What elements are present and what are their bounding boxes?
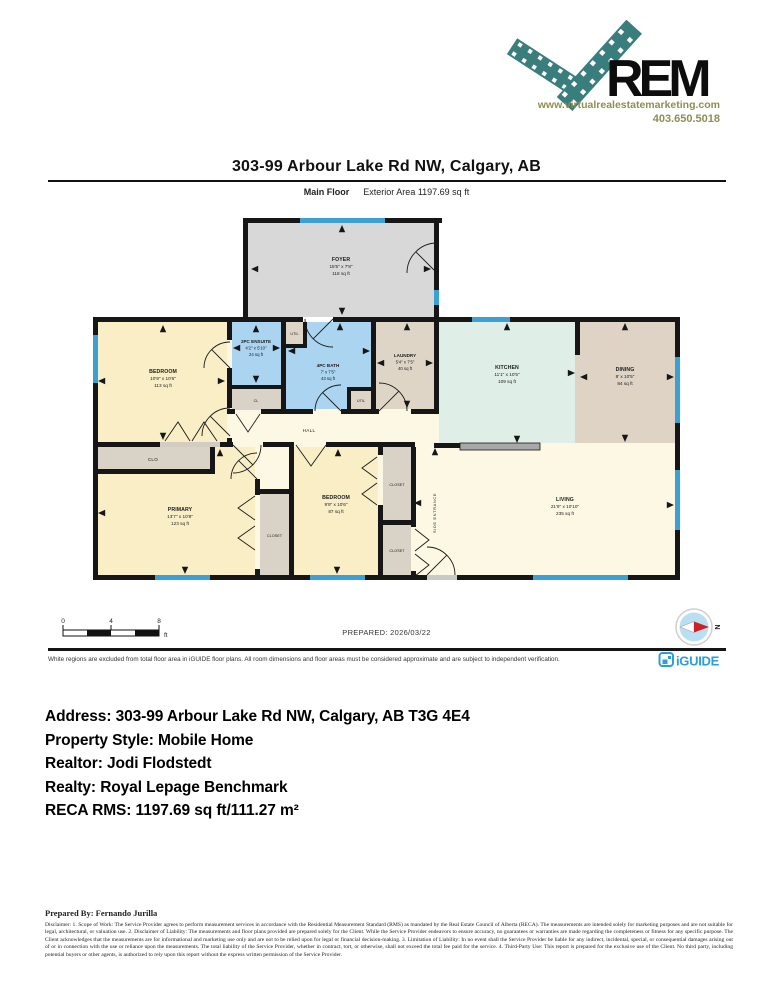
svg-text:21'9" x 10'10": 21'9" x 10'10" (551, 504, 580, 509)
util-label-2: UTIL (357, 399, 365, 403)
iguide-logo: iGUIDE (658, 650, 730, 675)
info-address: Address: 303-99 Arbour Lake Rd NW, Calga… (45, 705, 470, 729)
svg-text:10'9" x 10'6": 10'9" x 10'6" (150, 376, 176, 381)
svg-text:DINING: DINING (616, 367, 635, 373)
svg-text:11'1" x 10'5": 11'1" x 10'5" (494, 372, 520, 377)
floor-label: Main Floor (304, 187, 350, 197)
room-label-foyer: FOYER 15'5" x 7'8" 118 sq ft (329, 257, 352, 276)
exterior-area-label: Exterior Area 1197.69 sq ft (363, 187, 469, 197)
logo-phone: 403.650.5018 (653, 113, 720, 125)
footer-divider (48, 648, 726, 651)
svg-text:113 sq ft: 113 sq ft (154, 383, 172, 388)
svg-text:FOYER: FOYER (332, 257, 351, 263)
closet-label-top: CLOSET (389, 483, 405, 487)
iguide-wordmark: iGUIDE (676, 654, 720, 669)
svg-text:40 sq ft: 40 sq ft (398, 366, 413, 371)
page-title: 303-99 Arbour Lake Rd NW, Calgary, AB (0, 158, 773, 176)
svg-text:235 sq ft: 235 sq ft (556, 511, 575, 516)
info-reca-rms: RECA RMS: 1197.69 sq ft/111.27 m² (45, 799, 470, 823)
compass-north-label: N (713, 624, 720, 629)
svg-text:PRIMARY: PRIMARY (168, 507, 193, 513)
svg-text:5'4" x 7'5": 5'4" x 7'5" (396, 360, 415, 365)
closet-label-bottom: CLOSET (389, 549, 405, 553)
scale-0: 0 (61, 618, 65, 625)
util-label-1: UTIL (290, 332, 298, 336)
info-property-style: Property Style: Mobile Home (45, 729, 470, 753)
svg-text:BEDROOM: BEDROOM (149, 369, 177, 375)
svg-text:4PC BATH: 4PC BATH (317, 363, 340, 368)
property-info: Address: 303-99 Arbour Lake Rd NW, Calga… (45, 705, 470, 823)
svg-text:13'7" x 10'8": 13'7" x 10'8" (167, 514, 193, 519)
info-realtor: Realtor: Jodi Flodstedt (45, 752, 470, 776)
svg-text:118 sq ft: 118 sq ft (332, 271, 350, 276)
svg-text:BEDROOM: BEDROOM (322, 495, 350, 501)
iguide-icon (660, 653, 674, 666)
clo-label: CLO (148, 457, 158, 462)
svg-text:KITCHEN: KITCHEN (495, 365, 519, 371)
svg-text:LAUNDRY: LAUNDRY (394, 353, 416, 358)
info-realty: Realty: Royal Lepage Benchmark (45, 776, 470, 800)
closet-label-primary: CLOSET (267, 534, 283, 538)
logo-url: www.virtualrealestatemarketing.com (537, 99, 720, 111)
svg-text:8' x 10'5": 8' x 10'5" (616, 374, 635, 379)
vrem-logo: REM www.virtualrealestatemarketing.com 4… (498, 20, 748, 128)
svg-text:109 sq ft: 109 sq ft (498, 379, 517, 384)
hall-label: HALL (303, 428, 316, 433)
floor-plan: FOYER 15'5" x 7'8" 118 sq ft BEDROOM 10'… (85, 205, 695, 605)
side-entrance-label: SIDE ENTRANCE (432, 493, 437, 533)
svg-text:7' x 7'5": 7' x 7'5" (321, 370, 336, 375)
scale-8: 8 (157, 618, 161, 625)
svg-text:87 sq ft: 87 sq ft (328, 509, 344, 514)
title-divider (48, 180, 726, 182)
svg-text:84 sq ft: 84 sq ft (617, 381, 633, 386)
floor-subtitle: Main FloorExterior Area 1197.69 sq ft (0, 187, 773, 197)
legal-disclaimer: Disclaimer: 1. Scope of Work: The Servic… (45, 922, 733, 959)
room-label-dining: DINING 8' x 10'5" 84 sq ft (616, 367, 635, 386)
svg-text:15'5" x 7'8": 15'5" x 7'8" (329, 264, 352, 269)
svg-text:9'9" x 10'6": 9'9" x 10'6" (324, 502, 347, 507)
svg-text:LIVING: LIVING (556, 497, 574, 503)
svg-text:24 sq ft: 24 sq ft (249, 352, 264, 357)
prepared-date: PREPARED: 2026/03/22 (0, 628, 773, 637)
scale-4: 4 (109, 618, 113, 625)
svg-text:43 sq ft: 43 sq ft (321, 376, 336, 381)
svg-text:123 sq ft: 123 sq ft (171, 521, 190, 526)
svg-text:4'2" x 5'10": 4'2" x 5'10" (245, 346, 267, 351)
cl-label: CL (254, 399, 259, 403)
svg-text:2PC ENSUITE: 2PC ENSUITE (241, 339, 271, 344)
prepared-by: Prepared By: Fernando Jurilla (45, 908, 157, 918)
iguide-note: White regions are excluded from total fl… (48, 656, 608, 663)
